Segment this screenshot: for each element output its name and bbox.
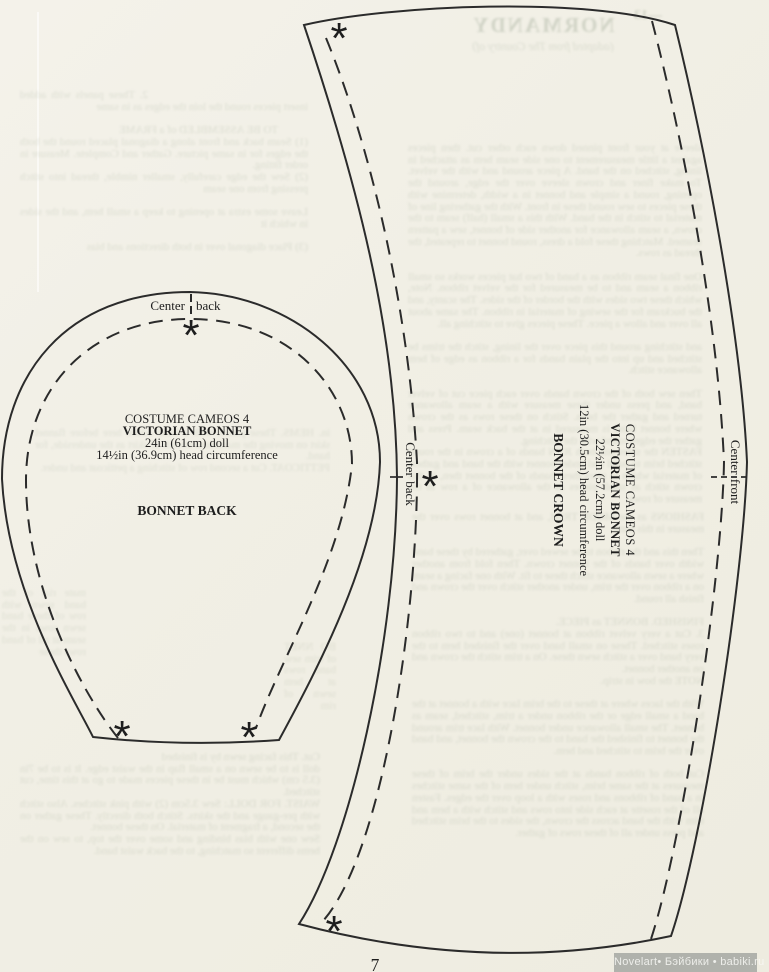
svg-text:Center back: Center back: [403, 442, 418, 506]
svg-text:*: *: [421, 462, 438, 511]
svg-text:Center front: Center front: [728, 440, 743, 505]
svg-text:14½in (36.9cm) head circumfere: 14½in (36.9cm) head circumference: [96, 448, 278, 462]
svg-text:12in (30.5cm) head circumferen: 12in (30.5cm) head circumference: [577, 404, 591, 577]
svg-text:BONNET CROWN: BONNET CROWN: [551, 433, 566, 547]
svg-text:*: *: [325, 907, 342, 956]
svg-text:BONNET BACK: BONNET BACK: [137, 503, 237, 518]
svg-text:7: 7: [371, 955, 380, 972]
svg-text:VICTORIAN BONNET: VICTORIAN BONNET: [608, 423, 622, 557]
svg-text:COSTUME CAMEOS 4: COSTUME CAMEOS 4: [623, 424, 637, 557]
svg-text:back: back: [196, 298, 221, 313]
svg-text:Center: Center: [150, 298, 185, 313]
svg-text:*: *: [113, 712, 130, 761]
svg-text:*: *: [240, 713, 257, 762]
svg-text:22½in (57.2cm) doll: 22½in (57.2cm) doll: [593, 439, 607, 542]
svg-text:*: *: [330, 14, 347, 63]
svg-text:*: *: [182, 311, 199, 360]
